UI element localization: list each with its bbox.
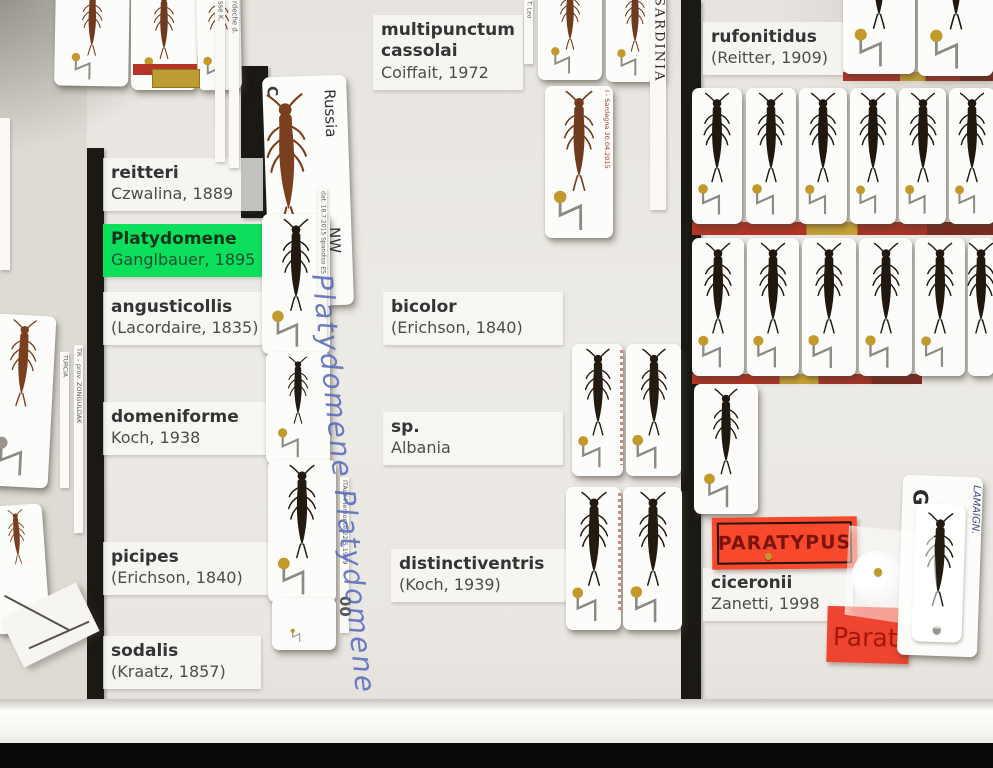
earwig-specimen-icon bbox=[831, 242, 993, 336]
handwritten-text: LAMAIGN. bbox=[969, 485, 982, 535]
red-strip-label bbox=[692, 222, 993, 235]
locality-text: dat. 18.7.2015 Spandiso ES bbox=[320, 191, 327, 274]
species-author: (Kraatz, 1857) bbox=[111, 662, 251, 682]
locality-text: SARDINIA bbox=[651, 0, 666, 83]
pin-icon bbox=[277, 628, 315, 644]
locality-text: TR – prov. ZONGULDAK bbox=[75, 348, 83, 423]
specimen-card bbox=[0, 313, 56, 488]
pin-icon bbox=[863, 332, 895, 373]
species-author: Coiffait, 1972 bbox=[381, 63, 513, 83]
pin-icon bbox=[953, 180, 981, 221]
earwig-specimen-icon bbox=[148, 356, 448, 425]
pin-icon bbox=[903, 180, 931, 221]
locality-text: rdeche d. bbox=[231, 1, 239, 34]
locality-text: Russia bbox=[320, 89, 340, 138]
species-label-sodalis: sodalis (Kraatz, 1857) bbox=[103, 636, 261, 689]
collector-label-leo: T. Leo bbox=[524, 0, 533, 64]
species-name: sodalis bbox=[111, 641, 251, 662]
pin-icon bbox=[570, 584, 603, 627]
earwig-specimen-icon bbox=[822, 92, 993, 184]
specimen-card bbox=[268, 460, 336, 602]
pin-icon bbox=[854, 180, 882, 221]
earwig-specimen-icon bbox=[152, 464, 452, 561]
earwig-specimen-icon bbox=[146, 218, 446, 313]
yellow-strip-label bbox=[152, 69, 200, 88]
species-author: Koch, 1938 bbox=[111, 428, 261, 448]
pin-icon bbox=[849, 27, 892, 71]
locality-label-russia: Russia bbox=[320, 89, 340, 138]
micro-label-strip bbox=[620, 350, 623, 465]
specimen-card bbox=[968, 238, 993, 376]
locality-label-ardeche-a: sse K. bbox=[215, 0, 225, 162]
insect-drawer-photo: sse K. rdeche d. TURCIA TR – prov. ZONGU… bbox=[0, 0, 993, 768]
envelope-shine bbox=[847, 546, 909, 608]
locality-label-zonguldak: TR – prov. ZONGULDAK bbox=[74, 345, 83, 533]
pin-head-dot bbox=[765, 553, 772, 560]
species-author: (Erichson, 1840) bbox=[111, 568, 269, 588]
locality-label-sardinia: SARDINIA bbox=[650, 0, 666, 210]
partial-edge-label bbox=[0, 118, 10, 270]
pin-icon bbox=[0, 431, 30, 484]
dark-floor bbox=[0, 743, 993, 768]
pin-icon bbox=[751, 332, 782, 373]
pin-icon bbox=[699, 472, 737, 511]
locality-label-ardeche-b: rdeche d. bbox=[229, 0, 239, 168]
specimen-card bbox=[694, 384, 758, 514]
specimen-card-bottom-stub bbox=[272, 598, 336, 650]
drawer-shelf-edge bbox=[0, 699, 993, 745]
pin-icon bbox=[750, 180, 780, 221]
specimen-card bbox=[949, 88, 993, 224]
specimen-card bbox=[623, 487, 682, 630]
pin-head-dot bbox=[874, 568, 882, 576]
pin-icon bbox=[267, 309, 308, 351]
pin-icon bbox=[611, 48, 646, 79]
pin-icon bbox=[803, 180, 832, 221]
micro-label-strip bbox=[618, 493, 621, 613]
pin-icon bbox=[806, 332, 838, 373]
species-author: Albania bbox=[391, 438, 553, 458]
locality-text: T. Leo bbox=[526, 1, 533, 18]
locality-text: TURCIA bbox=[62, 355, 69, 377]
pin-icon bbox=[696, 332, 727, 373]
pin-icon bbox=[696, 180, 726, 221]
pin-icon bbox=[273, 556, 314, 599]
pin-icon bbox=[919, 332, 949, 373]
pin-icon bbox=[550, 189, 591, 235]
pin-icon bbox=[271, 427, 309, 461]
pin-icon bbox=[628, 584, 663, 627]
locality-text: sse K. bbox=[217, 1, 225, 22]
specimen-card bbox=[918, 0, 993, 76]
pin-icon bbox=[924, 28, 969, 73]
locality-label-turcia: TURCIA bbox=[60, 352, 69, 488]
species-author: (Erichson, 1840) bbox=[391, 318, 553, 338]
